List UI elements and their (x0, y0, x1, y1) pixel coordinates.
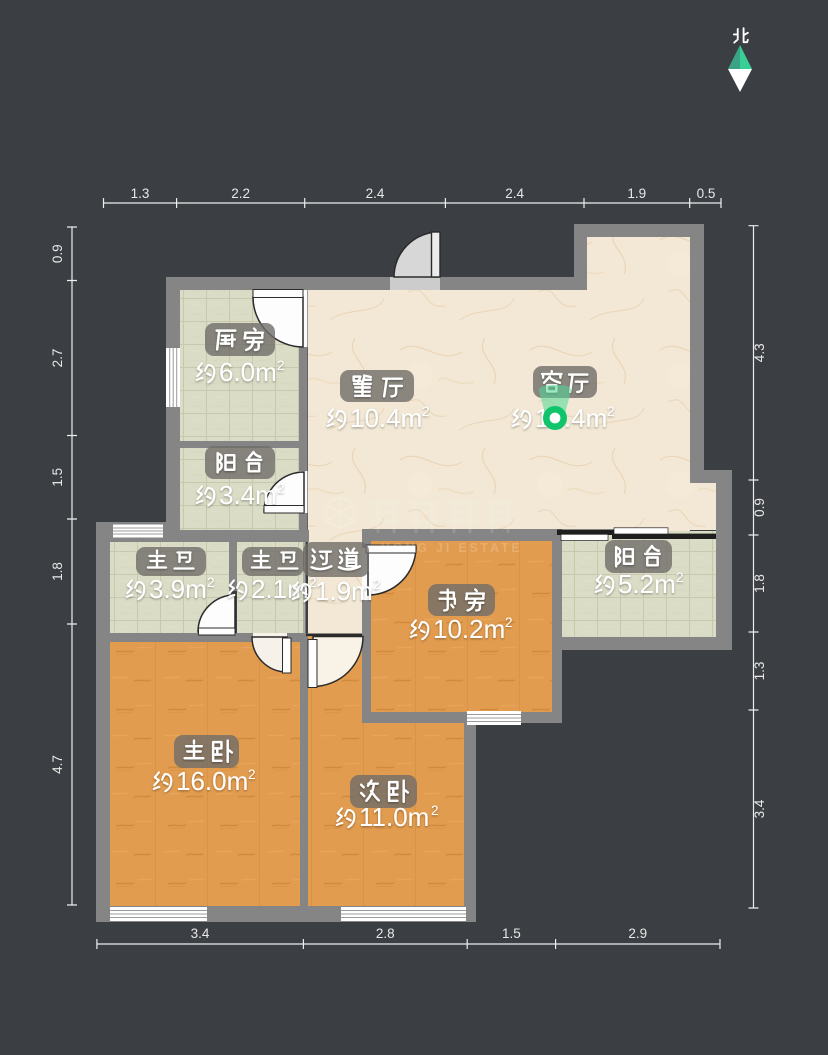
svg-text:2.4: 2.4 (366, 186, 385, 201)
svg-text:3.4: 3.4 (191, 926, 210, 941)
svg-text:1.3: 1.3 (752, 662, 767, 681)
svg-text:2.7: 2.7 (50, 349, 65, 368)
svg-text:2: 2 (277, 358, 285, 373)
svg-text:2.8: 2.8 (376, 926, 395, 941)
svg-text:HONG JI ESTATE: HONG JI ESTATE (381, 541, 523, 555)
svg-text:3.4m: 3.4m (219, 480, 277, 510)
svg-text:1.8: 1.8 (752, 574, 767, 593)
svg-text:2.9: 2.9 (628, 926, 647, 941)
svg-text:0.9: 0.9 (752, 498, 767, 517)
svg-text:1.8: 1.8 (50, 562, 65, 581)
svg-text:1.9m: 1.9m (315, 576, 373, 606)
svg-text:4.3: 4.3 (752, 343, 767, 362)
svg-text:0.9: 0.9 (50, 244, 65, 263)
svg-text:6.0m: 6.0m (219, 357, 277, 387)
svg-text:2: 2 (422, 404, 430, 419)
svg-text:16.0m: 16.0m (176, 766, 248, 796)
svg-text:2.1m: 2.1m (251, 574, 309, 604)
svg-text:2: 2 (607, 404, 615, 419)
svg-text:1.3: 1.3 (131, 186, 150, 201)
svg-text:5.2m: 5.2m (618, 569, 676, 599)
svg-text:10.4m: 10.4m (350, 403, 422, 433)
svg-text:2: 2 (373, 577, 381, 592)
svg-text:2: 2 (505, 615, 513, 630)
svg-text:11.0m: 11.0m (359, 802, 429, 832)
svg-text:1.5: 1.5 (502, 926, 521, 941)
svg-text:2: 2 (431, 803, 439, 818)
svg-text:2: 2 (676, 570, 684, 585)
svg-text:3.9m: 3.9m (149, 574, 207, 604)
svg-text:4.7: 4.7 (50, 755, 65, 774)
svg-text:2: 2 (277, 481, 285, 496)
svg-text:2.2: 2.2 (231, 186, 250, 201)
svg-text:2.4: 2.4 (505, 186, 524, 201)
svg-text:2: 2 (248, 767, 256, 782)
svg-text:2: 2 (207, 575, 215, 590)
svg-text:1.5: 1.5 (50, 468, 65, 487)
svg-text:1.9: 1.9 (627, 186, 646, 201)
svg-text:10.2m: 10.2m (433, 614, 505, 644)
svg-text:3.4: 3.4 (752, 799, 767, 818)
svg-text:0.5: 0.5 (697, 186, 716, 201)
